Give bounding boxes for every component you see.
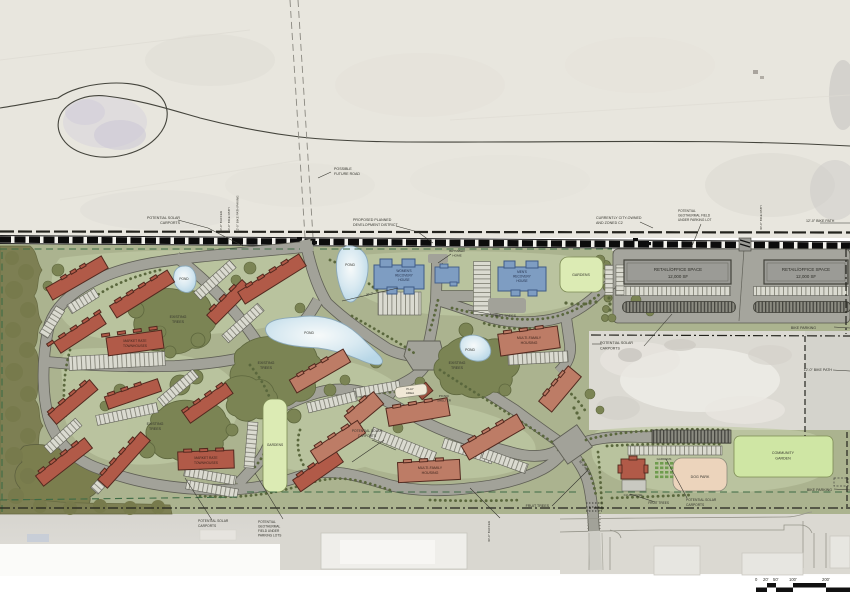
svg-text:TREES: TREES — [149, 427, 162, 431]
svg-text:100': 100' — [789, 577, 797, 582]
svg-text:12'-0" BIKE PATH: 12'-0" BIKE PATH — [806, 219, 835, 223]
svg-text:POND: POND — [179, 277, 189, 281]
svg-text:12'-0" BIKE PATH PAVING: 12'-0" BIKE PATH PAVING — [236, 195, 240, 232]
svg-text:GEOTHERMAL FIELD: GEOTHERMAL FIELD — [678, 214, 711, 218]
svg-text:RETAIL/OFFICE SPACE: RETAIL/OFFICE SPACE — [782, 267, 830, 272]
svg-text:POND: POND — [304, 331, 314, 335]
svg-text:20': 20' — [763, 577, 769, 582]
svg-text:BIKE PARKING: BIKE PARKING — [791, 326, 816, 330]
svg-text:HOUSE: HOUSE — [398, 278, 409, 282]
svg-text:POND: POND — [345, 263, 355, 267]
svg-text:RECOVERY: RECOVERY — [513, 275, 532, 279]
svg-text:30'-0" BUFFER: 30'-0" BUFFER — [487, 520, 491, 542]
svg-text:POTENTIAL SOLAR: POTENTIAL SOLAR — [600, 341, 633, 345]
svg-text:MARKET RATE: MARKET RATE — [123, 339, 147, 343]
svg-text:GARDEN: GARDEN — [775, 457, 791, 461]
svg-text:30'-0" BIKE PATH: 30'-0" BIKE PATH — [759, 206, 763, 230]
svg-text:POTENTIAL SOLAR: POTENTIAL SOLAR — [147, 216, 180, 220]
svg-text:CARPORTS: CARPORTS — [198, 524, 217, 528]
svg-text:CARPORTS: CARPORTS — [160, 221, 181, 225]
svg-text:HOUSING: HOUSING — [422, 471, 439, 475]
svg-text:12,000 SF: 12,000 SF — [796, 274, 817, 279]
svg-text:BIKE PARKING: BIKE PARKING — [807, 488, 832, 492]
svg-text:DEVELOPMENT DISTRICT: DEVELOPMENT DISTRICT — [353, 223, 398, 227]
svg-text:DOG PARK: DOG PARK — [691, 475, 710, 479]
svg-text:30'-0" BUFFER: 30'-0" BUFFER — [219, 210, 223, 232]
svg-text:EXISTING: EXISTING — [258, 361, 275, 365]
svg-text:FRUIT TREES: FRUIT TREES — [648, 501, 669, 505]
svg-text:EXISTING: EXISTING — [147, 422, 164, 426]
svg-text:HOME: HOME — [452, 254, 461, 258]
svg-text:50': 50' — [773, 577, 779, 582]
svg-text:POTENTIAL SOLAR: POTENTIAL SOLAR — [198, 519, 229, 523]
svg-text:SHELTER: SHELTER — [437, 399, 452, 403]
svg-text:POTENTIAL SOLAR: POTENTIAL SOLAR — [686, 498, 717, 502]
svg-text:FRUIT TREES: FRUIT TREES — [493, 314, 517, 318]
svg-text:10'-0" BIKE PATH: 10'-0" BIKE PATH — [227, 208, 231, 232]
svg-text:FRUIT TREES: FRUIT TREES — [526, 504, 550, 508]
svg-text:CLUBHOUSE: CLUBHOUSE — [624, 493, 643, 497]
svg-text:GEOTHERMAL: GEOTHERMAL — [258, 525, 281, 529]
svg-text:EXISTING: EXISTING — [170, 315, 187, 319]
svg-text:MULTI-FAMILY: MULTI-FAMILY — [418, 466, 443, 470]
svg-text:COMMUNITY: COMMUNITY — [772, 451, 795, 455]
svg-text:EXISTING: EXISTING — [449, 361, 466, 365]
svg-text:MARKET RATE: MARKET RATE — [194, 456, 218, 460]
svg-text:TREES: TREES — [260, 366, 273, 370]
svg-text:GARDENS: GARDENS — [657, 457, 672, 461]
svg-text:12'-0" BIKE PATH: 12'-0" BIKE PATH — [804, 368, 833, 372]
svg-text:POND: POND — [465, 348, 475, 352]
svg-text:200': 200' — [822, 577, 830, 582]
svg-text:CURRENTLY CITY-OWNED: CURRENTLY CITY-OWNED — [596, 216, 642, 220]
svg-text:RECOVERY: RECOVERY — [395, 274, 414, 278]
svg-text:CARPORTS: CARPORTS — [686, 503, 705, 507]
svg-text:AND ZONED C2: AND ZONED C2 — [596, 221, 623, 225]
svg-text:WOMEN'S: WOMEN'S — [396, 269, 411, 273]
svg-text:12,000 SF: 12,000 SF — [668, 274, 689, 279]
svg-text:MEN'S: MEN'S — [517, 270, 527, 274]
svg-text:POTENTIAL SOLAR: POTENTIAL SOLAR — [352, 429, 383, 433]
svg-text:UNDER PARKING LOT: UNDER PARKING LOT — [678, 218, 711, 222]
svg-text:PICNIC: PICNIC — [439, 394, 450, 398]
svg-text:POTENTIAL: POTENTIAL — [258, 520, 276, 524]
svg-text:CARPORTS: CARPORTS — [600, 347, 621, 351]
svg-text:POSSIBLE: POSSIBLE — [334, 167, 352, 171]
svg-text:HOUSING: HOUSING — [521, 341, 538, 345]
svg-text:RETAIL/OFFICE SPACE: RETAIL/OFFICE SPACE — [654, 267, 702, 272]
svg-text:FUTURE ROAD: FUTURE ROAD — [334, 172, 360, 176]
svg-text:MULTI-FAMILY: MULTI-FAMILY — [517, 336, 542, 340]
svg-text:HOUSE: HOUSE — [516, 279, 527, 283]
svg-text:GARDENS: GARDENS — [572, 273, 590, 277]
svg-text:CARPORTS: CARPORTS — [358, 434, 377, 438]
svg-text:GARDENS: GARDENS — [267, 443, 284, 447]
svg-text:TOWNHOUSES: TOWNHOUSES — [123, 344, 148, 348]
svg-text:PARKING LOTS: PARKING LOTS — [258, 534, 281, 538]
svg-text:BR'HABER: BR'HABER — [449, 249, 465, 253]
svg-text:AREA: AREA — [406, 391, 414, 395]
svg-text:TOWNHOUSES: TOWNHOUSES — [194, 461, 219, 465]
svg-text:TREES: TREES — [172, 320, 185, 324]
svg-text:FIELD UNDER: FIELD UNDER — [258, 529, 280, 533]
svg-text:PROPOSED PLANNED: PROPOSED PLANNED — [353, 218, 392, 222]
svg-text:POTENTIAL: POTENTIAL — [678, 209, 696, 213]
svg-text:TREES: TREES — [451, 366, 464, 370]
